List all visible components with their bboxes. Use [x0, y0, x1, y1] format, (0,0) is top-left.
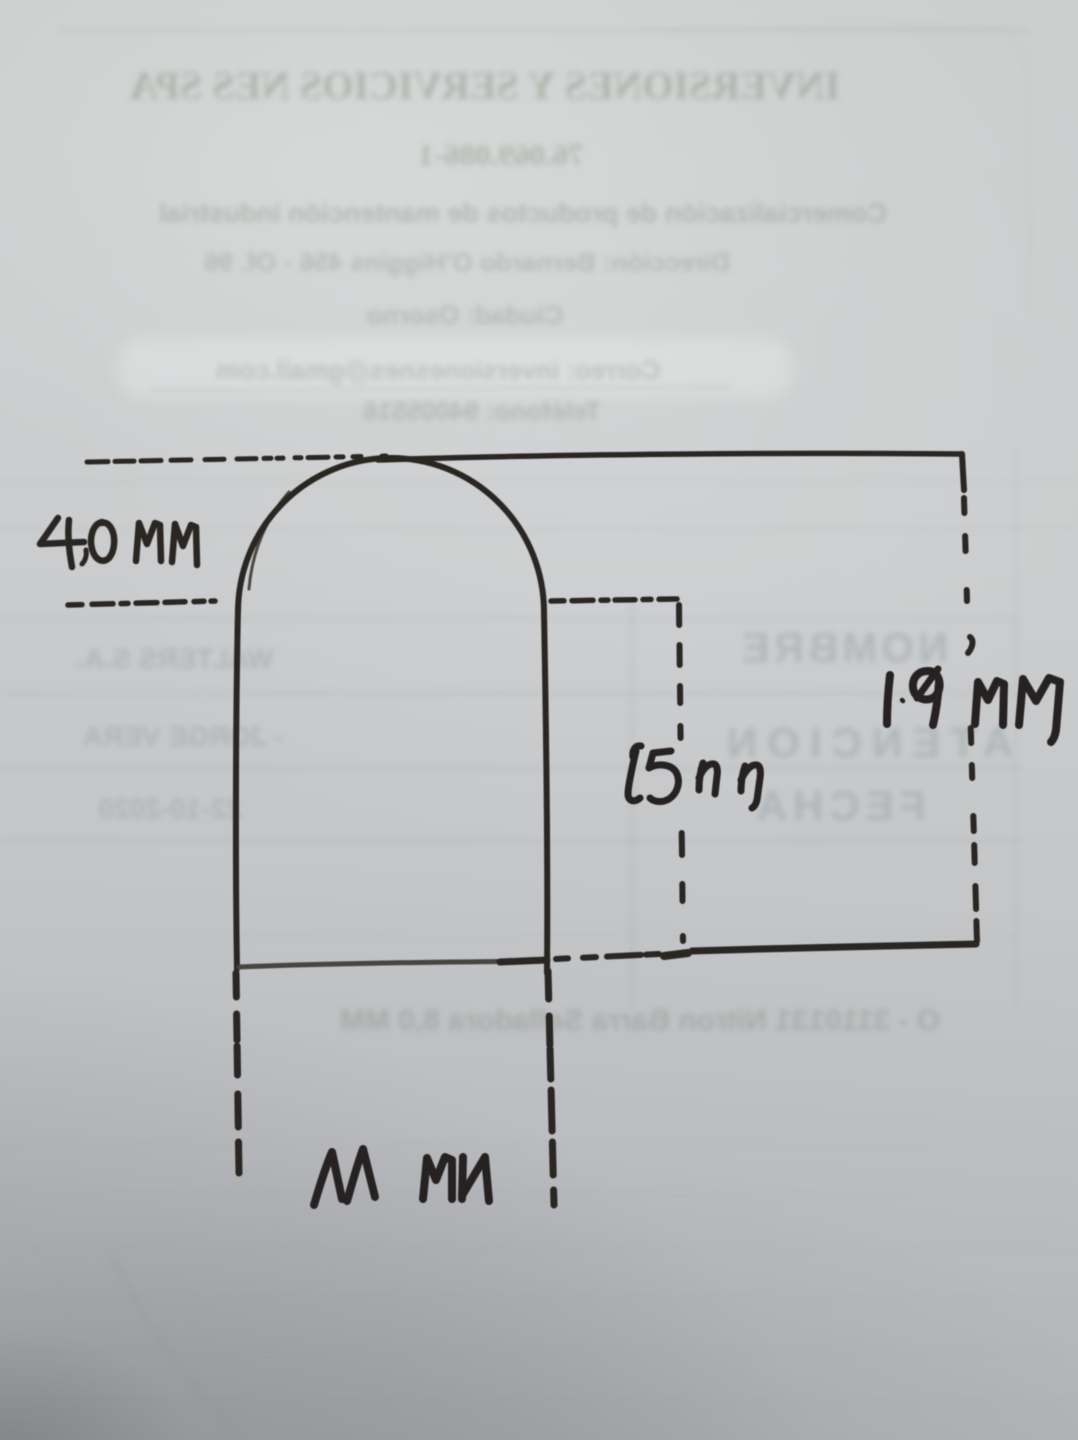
svg-text:Teléfono: 94005516: Teléfono: 94005516 [363, 396, 601, 426]
svg-text:Ciudad: Osorno: Ciudad: Osorno [367, 300, 563, 330]
svg-text:22-10-2020: 22-10-2020 [98, 793, 241, 824]
svg-text:Dirección: Bernardo O’Higgins: Dirección: Bernardo O’Higgins 456 - Of. … [204, 247, 730, 277]
svg-text:O - 3110131 Nitron Barra Sella: O - 3110131 Nitron Barra Selladora 8,0 M… [340, 1004, 940, 1037]
svg-text:FECHA: FECHA [751, 782, 926, 829]
svg-text:NOMBRE: NOMBRE [738, 624, 949, 671]
svg-text:Comercialización de productos: Comercialización de productos de mantenc… [159, 198, 887, 228]
svg-text:INVERSIONES Y SERVICIOS NES SP: INVERSIONES Y SERVICIOS NES SPA [130, 63, 841, 108]
svg-text:- JORGE VERA: - JORGE VERA [83, 721, 284, 752]
svg-text:WALTERS S.A.: WALTERS S.A. [76, 643, 273, 674]
svg-text:76.069.086-1: 76.069.086-1 [418, 137, 583, 172]
svg-text:Correo: inversionesnes@gmail.c: Correo: inversionesnes@gmail.com [216, 355, 660, 385]
